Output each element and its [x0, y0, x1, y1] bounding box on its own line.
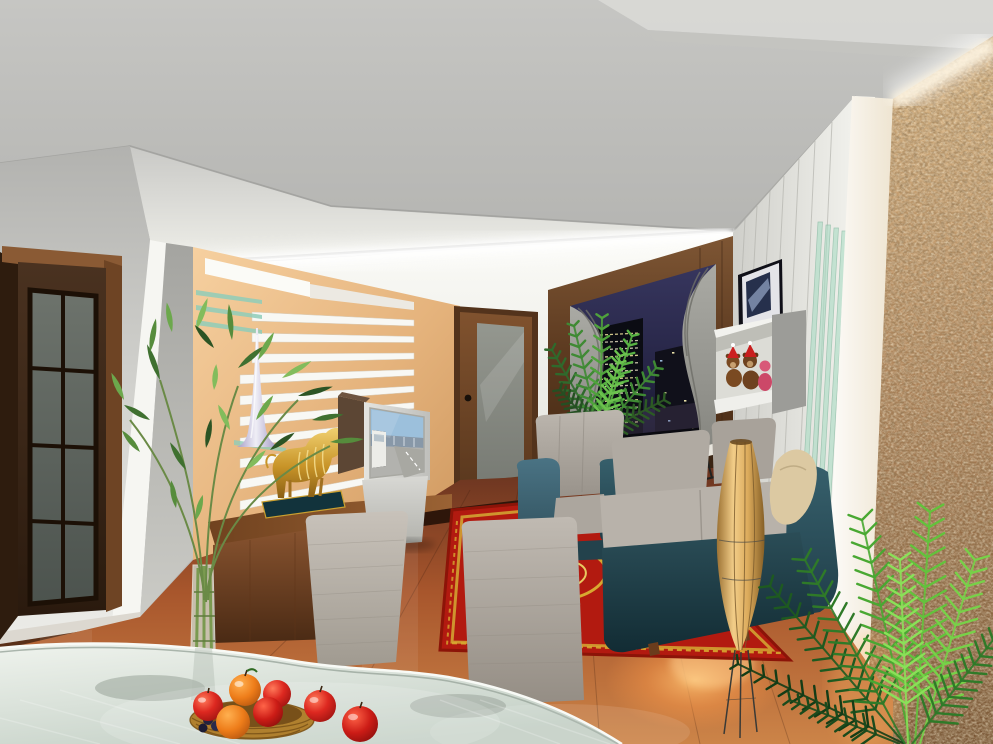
door-handle	[465, 395, 472, 402]
french-door	[0, 246, 122, 640]
apple-on-table	[342, 706, 378, 742]
orange	[216, 705, 250, 739]
teddy-bear-pink	[758, 373, 772, 391]
apple-on-table	[304, 690, 336, 722]
sofa-foot	[648, 642, 660, 656]
orange	[229, 674, 261, 706]
interior-render	[0, 0, 993, 744]
dining-chair-right	[462, 517, 584, 706]
door-casing-right	[104, 260, 122, 612]
tv-screen	[370, 408, 424, 478]
tv-side-cabinet	[338, 396, 366, 474]
apple	[253, 697, 283, 727]
shelf-side-panel	[772, 310, 806, 414]
teddy-bear-brown-1	[726, 369, 742, 387]
door-casing-left	[0, 252, 18, 640]
lamp-top-rim	[730, 439, 752, 445]
render-canvas	[0, 0, 993, 744]
teddy-bear-brown-2	[743, 371, 760, 390]
